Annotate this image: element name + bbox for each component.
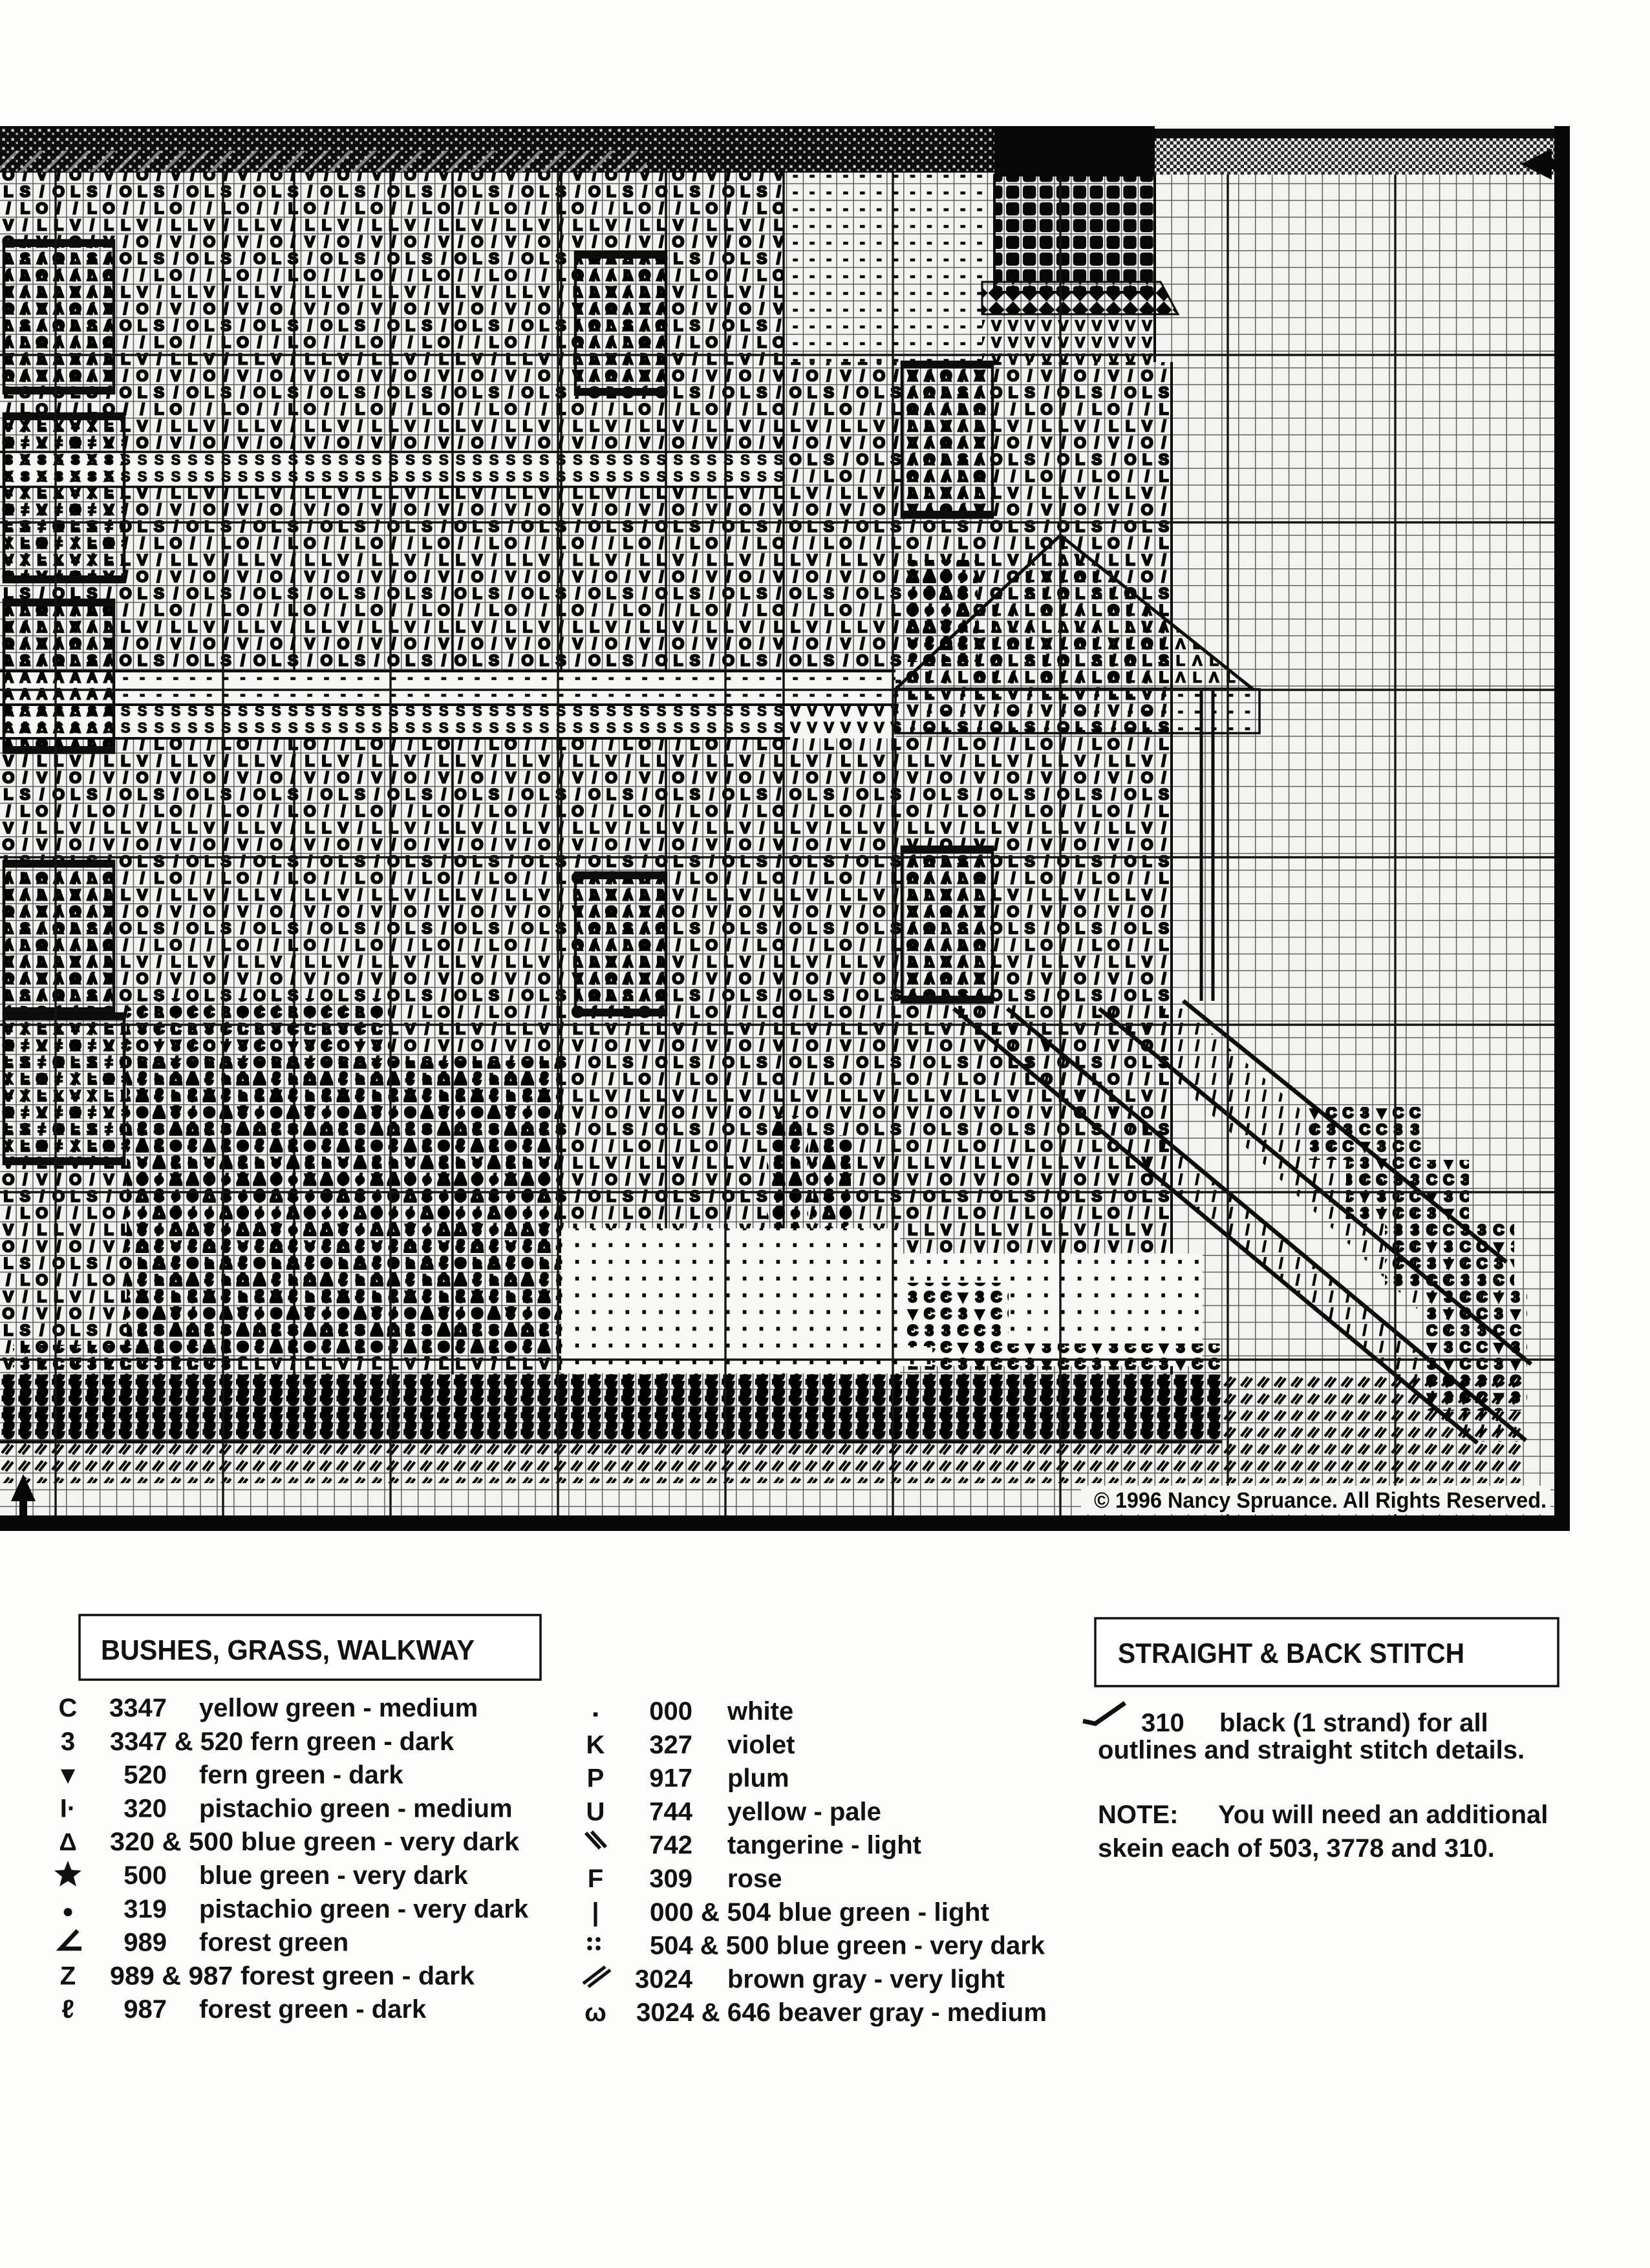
- svg-text:000: 000: [649, 1697, 692, 1726]
- svg-text:504 & 500 blue green - very da: 504 & 500 blue green - very dark: [650, 1932, 1045, 1960]
- svg-text:skein each of 503, 3778 and 31: skein each of 503, 3778 and 310.: [1098, 1834, 1495, 1863]
- svg-text:BUSHES, GRASS, WALKWAY: BUSHES, GRASS, WALKWAY: [101, 1634, 475, 1666]
- svg-text:rose: rose: [727, 1865, 782, 1893]
- svg-text:You will need an additional: You will need an additional: [1218, 1801, 1548, 1829]
- svg-text:outlines and straight stitch d: outlines and straight stitch details.: [1098, 1736, 1525, 1764]
- svg-text:P: P: [587, 1764, 605, 1793]
- svg-text:3: 3: [61, 1728, 75, 1756]
- svg-text:tangerine - light: tangerine - light: [727, 1831, 921, 1859]
- svg-text:plum: plum: [727, 1764, 789, 1793]
- svg-text:742: 742: [649, 1831, 692, 1859]
- svg-text:Δ: Δ: [59, 1829, 76, 1856]
- svg-text:U: U: [586, 1797, 605, 1826]
- svg-text:987: 987: [123, 1995, 167, 2024]
- svg-text:forest green: forest green: [199, 1929, 348, 1957]
- svg-text:744: 744: [649, 1797, 692, 1826]
- svg-text:yellow - pale: yellow - pale: [727, 1797, 881, 1826]
- svg-text:ℓ: ℓ: [61, 1995, 74, 2024]
- svg-text:ω: ω: [584, 1998, 606, 2027]
- svg-text:NOTE:: NOTE:: [1098, 1801, 1178, 1829]
- svg-text:forest green - dark: forest green - dark: [199, 1995, 427, 2024]
- svg-text:pistachio green - medium: pistachio green - medium: [199, 1794, 513, 1823]
- svg-text:pistachio green - very dark: pistachio green - very dark: [199, 1895, 529, 1923]
- svg-text:K: K: [586, 1731, 605, 1759]
- svg-text:|: |: [592, 1898, 599, 1927]
- svg-text:STRAIGHT & BACK STITCH: STRAIGHT & BACK STITCH: [1118, 1638, 1464, 1669]
- svg-text:© 1996 Nancy Spruance. All Ri: © 1996 Nancy Spruance. All Rights Reserv…: [1094, 1488, 1547, 1513]
- svg-text:320 & 500 blue green - very da: 320 & 500 blue green - very dark: [110, 1828, 520, 1856]
- svg-text:000 & 504 blue green - light: 000 & 504 blue green - light: [650, 1898, 989, 1927]
- svg-text:yellow green - medium: yellow green - medium: [199, 1694, 478, 1722]
- svg-text:I·: I·: [60, 1794, 76, 1823]
- svg-text:fern green - dark: fern green - dark: [199, 1761, 403, 1790]
- svg-text:white: white: [727, 1697, 793, 1726]
- svg-text:310: 310: [1141, 1709, 1184, 1737]
- svg-text:3347 & 520 fern green - dark: 3347 & 520 fern green - dark: [110, 1728, 455, 1756]
- svg-text:brown gray - very light: brown gray - very light: [727, 1965, 1005, 1993]
- svg-text:3024: 3024: [635, 1965, 693, 1993]
- svg-text:989 & 987 forest green - dark: 989 & 987 forest green - dark: [110, 1962, 475, 1990]
- svg-text:327: 327: [649, 1731, 692, 1759]
- svg-text:319: 319: [123, 1895, 167, 1923]
- svg-text:917: 917: [649, 1764, 692, 1793]
- svg-text:▼: ▼: [56, 1762, 80, 1790]
- svg-text:320: 320: [123, 1794, 167, 1823]
- svg-text:3347: 3347: [109, 1694, 167, 1722]
- svg-text:black (1 strand) for all: black (1 strand) for all: [1219, 1709, 1488, 1737]
- svg-text:violet: violet: [727, 1731, 795, 1759]
- svg-text:520: 520: [123, 1761, 167, 1790]
- svg-text:Z: Z: [60, 1962, 76, 1990]
- svg-text:F: F: [588, 1865, 603, 1893]
- svg-text:●: ●: [62, 1901, 74, 1922]
- svg-text:500: 500: [123, 1861, 167, 1890]
- svg-text:▪: ▪: [592, 1704, 598, 1724]
- svg-text:C: C: [59, 1694, 78, 1722]
- svg-text:309: 309: [649, 1865, 692, 1893]
- svg-text:989: 989: [123, 1929, 167, 1957]
- svg-text:blue green - very dark: blue green - very dark: [199, 1861, 468, 1890]
- svg-text:3024 & 646 beaver gray - mediu: 3024 & 646 beaver gray - medium: [636, 1998, 1047, 2027]
